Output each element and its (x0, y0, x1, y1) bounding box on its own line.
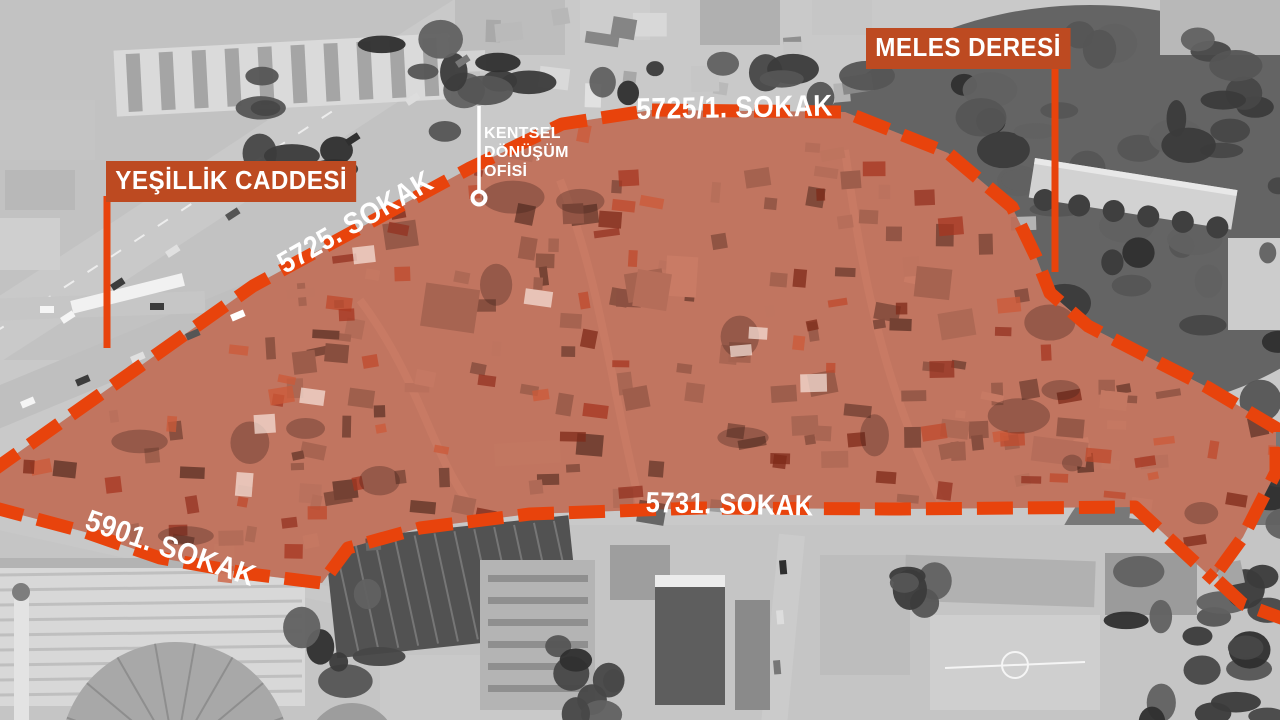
label-kentsel-donusum-ofisi: KENTSEL DÖNÜŞÜM OFİSİ (484, 124, 569, 181)
office-label-line-3: OFİSİ (484, 162, 569, 181)
label-meles-deresi: MELES DERESİ (866, 28, 1070, 69)
label-street-5731-sokak: 5731. SOKAK (645, 487, 814, 524)
label-yesillik-caddesi: YEŞİLLİK CADDESİ (106, 161, 356, 202)
annotated-aerial-view: YEŞİLLİK CADDESİ MELES DERESİ 5725/1. SO… (0, 0, 1280, 720)
office-label-line-1: KENTSEL (484, 124, 569, 143)
office-label-line-2: DÖNÜŞÜM (484, 143, 569, 162)
label-street-5725-1-sokak: 5725/1. SOKAK (636, 90, 833, 127)
